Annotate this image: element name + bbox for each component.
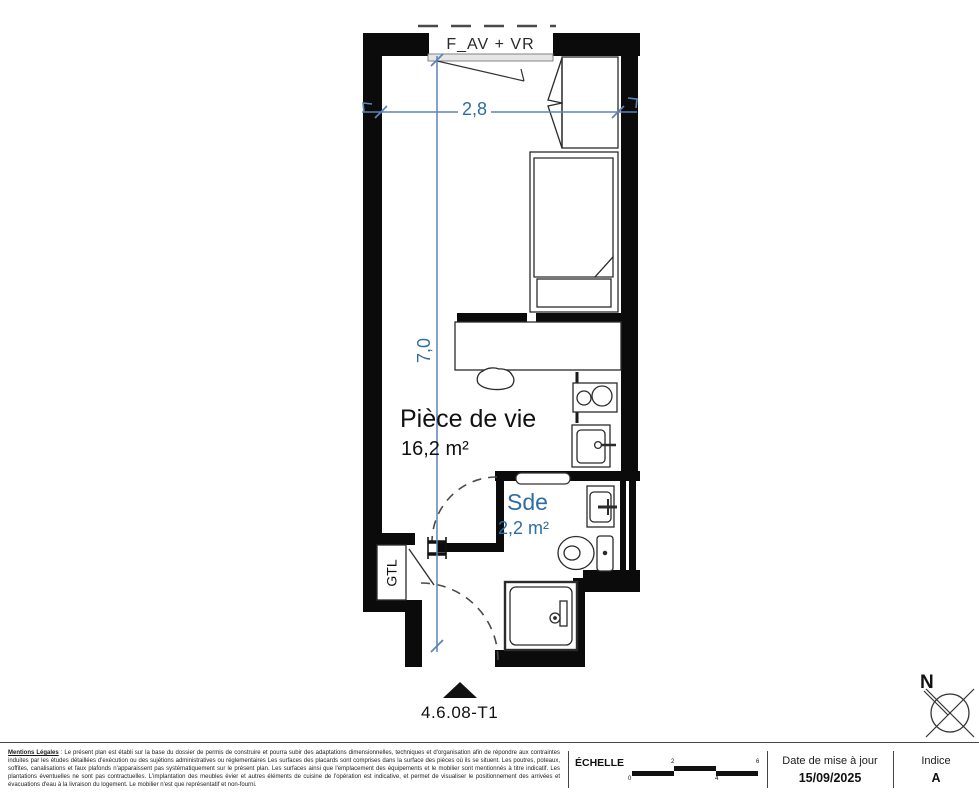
wardrobe — [548, 57, 618, 148]
entrance-marker-icon — [443, 682, 477, 698]
index-value: A — [893, 771, 979, 785]
dimension-width-value: 2,8 — [458, 99, 491, 120]
bathroom-name: Sde — [507, 489, 548, 516]
gtl-label: GTL — [384, 559, 400, 586]
compass-icon — [905, 665, 979, 745]
scale-tick-0: 0 — [628, 776, 631, 782]
technical-shaft — [620, 475, 636, 575]
kitchen-counter — [455, 322, 621, 370]
legal-mentions: Mentions Légales : Le présent plan est é… — [8, 749, 560, 789]
scale-title: ÉCHELLE — [575, 757, 624, 769]
bed — [530, 152, 618, 312]
scale-bar — [628, 756, 764, 790]
update-date-value: 15/09/2025 — [767, 771, 893, 785]
footer-separator-1 — [568, 751, 569, 788]
scale-tick-4: 4 — [715, 776, 718, 782]
washbasin — [587, 486, 617, 527]
unit-number-label: 4.6.08-T1 — [421, 703, 498, 723]
window-type-label: F_AV + VR — [428, 36, 553, 54]
sliding-door — [516, 473, 570, 484]
toilet — [558, 536, 613, 571]
living-room-area: 16,2 m² — [401, 438, 469, 461]
scale-tick-6: 6 — [756, 759, 759, 765]
update-date-label: Date de mise à jour — [767, 755, 893, 767]
shower — [505, 582, 577, 650]
footer-divider — [0, 742, 979, 743]
kitchen-sink — [572, 425, 616, 467]
window — [428, 54, 553, 81]
index-label: Indice — [893, 755, 979, 767]
legal-mentions-title: Mentions Légales — [8, 750, 59, 756]
legal-mentions-text: : Le présent plan est établi sur la base… — [8, 750, 560, 788]
hob — [573, 383, 617, 412]
entrance-door-swing-arc — [409, 549, 498, 660]
bathroom-area: 2,2 m² — [498, 518, 549, 539]
scale-tick-2: 2 — [671, 759, 674, 765]
chair — [477, 368, 514, 390]
floor-plan-sheet: F_AV + VR 2,8 7,0 Pièce de vie 16,2 m² S… — [0, 0, 979, 800]
dimension-height-value: 7,0 — [414, 334, 435, 367]
living-room-name: Pièce de vie — [400, 405, 536, 434]
